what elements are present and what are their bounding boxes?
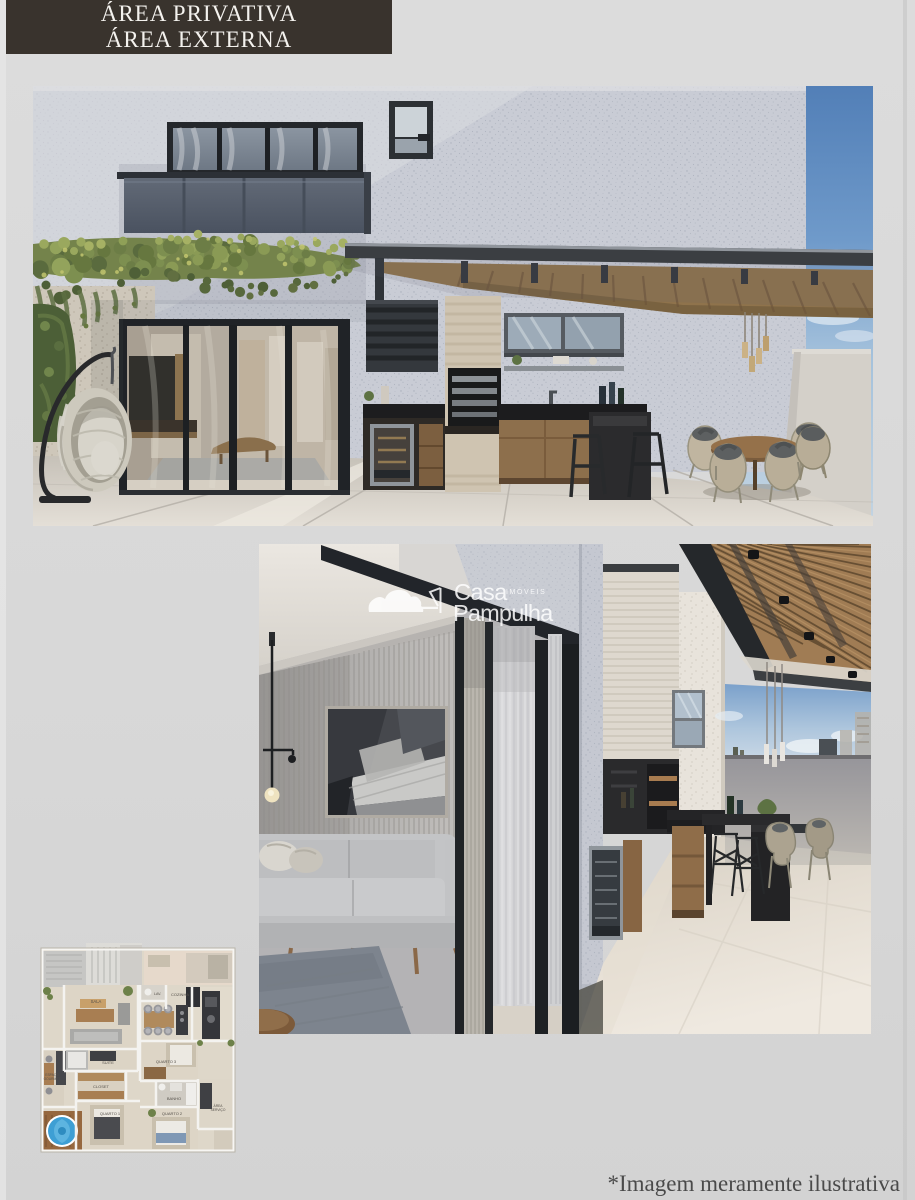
svg-text:GOURMET: GOURMET bbox=[44, 1077, 61, 1081]
svg-text:Pampulha: Pampulha bbox=[453, 600, 554, 626]
svg-text:LAV.: LAV. bbox=[154, 992, 161, 996]
svg-text:QUARTO 3: QUARTO 3 bbox=[156, 1059, 177, 1064]
svg-text:SERVIÇO: SERVIÇO bbox=[211, 1108, 226, 1112]
svg-text:COZINHA: COZINHA bbox=[171, 992, 189, 997]
svg-text:SUITE: SUITE bbox=[102, 1060, 114, 1065]
svg-text:SALA: SALA bbox=[91, 999, 102, 1004]
svg-text:QUARTO 1: QUARTO 1 bbox=[100, 1111, 121, 1116]
svg-text:IMÓVEIS: IMÓVEIS bbox=[506, 587, 546, 596]
svg-text:CLOSET: CLOSET bbox=[93, 1084, 110, 1089]
svg-text:BANHO: BANHO bbox=[167, 1096, 181, 1101]
svg-text:QUARTO 2: QUARTO 2 bbox=[162, 1111, 183, 1116]
